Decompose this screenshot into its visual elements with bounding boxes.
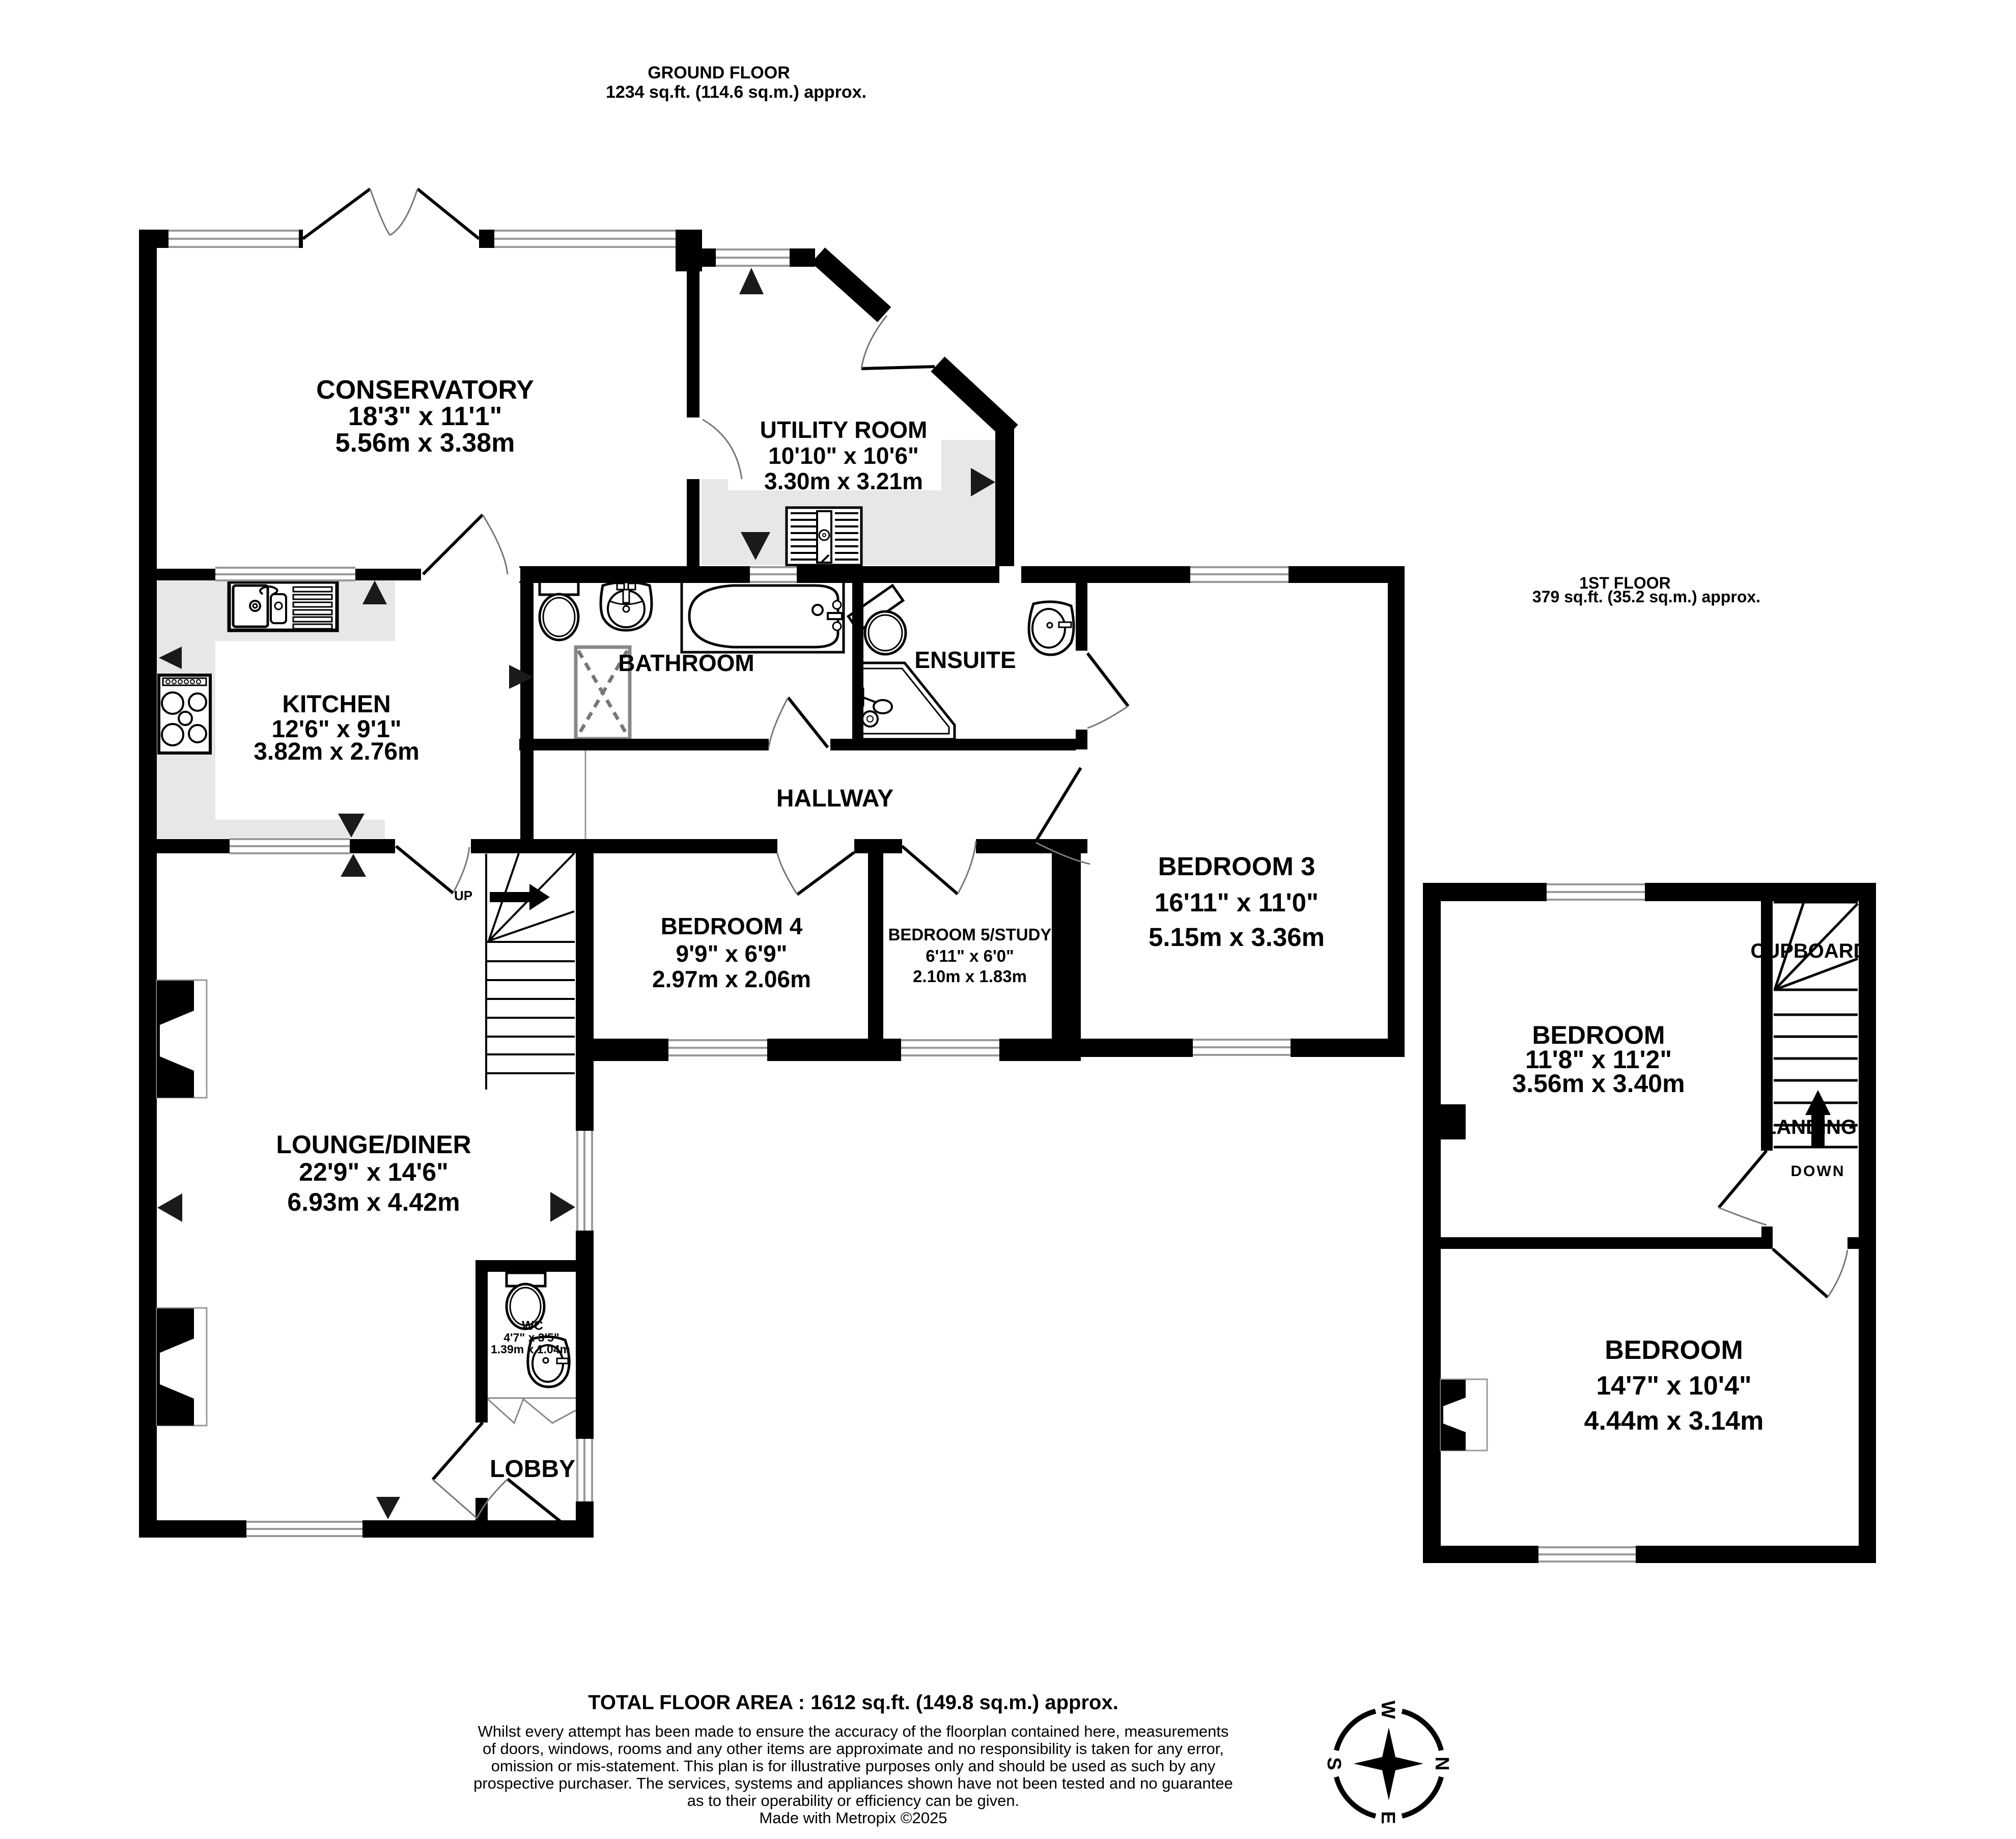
svg-text:UTILITY ROOM: UTILITY ROOM [760,416,928,443]
svg-text:BEDROOM 4: BEDROOM 4 [661,913,803,939]
svg-text:18'3" x 11'1": 18'3" x 11'1" [348,402,502,431]
svg-text:4.44m x 3.14m: 4.44m x 3.14m [1584,1406,1764,1436]
svg-text:Whilst every attempt has been: Whilst every attempt has been made to en… [478,1722,1228,1740]
svg-text:GROUND FLOOR: GROUND FLOOR [648,63,790,82]
svg-text:S: S [1323,1757,1345,1770]
svg-text:3.82m x 2.76m: 3.82m x 2.76m [254,738,419,765]
svg-text:BEDROOM 5/STUDY: BEDROOM 5/STUDY [888,925,1052,944]
svg-text:10'10" x 10'6": 10'10" x 10'6" [768,442,919,469]
svg-text:BEDROOM 3: BEDROOM 3 [1158,852,1315,881]
svg-text:6.93m x 4.42m: 6.93m x 4.42m [287,1188,460,1216]
svg-text:ENSUITE: ENSUITE [914,647,1016,673]
svg-text:1234 sq.ft. (114.6 sq.m.) appr: 1234 sq.ft. (114.6 sq.m.) approx. [606,82,866,102]
svg-text:of doors, windows, rooms and a: of doors, windows, rooms and any other i… [483,1740,1224,1758]
svg-text:W: W [1377,1701,1398,1719]
svg-text:3.56m x 3.40m: 3.56m x 3.40m [1512,1069,1685,1098]
svg-text:BEDROOM: BEDROOM [1605,1335,1743,1365]
svg-text:as to their operability or eff: as to their operability or efficiency ca… [687,1792,1020,1809]
svg-text:2.10m x 1.83m: 2.10m x 1.83m [913,967,1027,986]
svg-text:CUPBOARD: CUPBOARD [1750,940,1868,962]
svg-text:1.39m x 1.04m: 1.39m x 1.04m [491,1343,570,1356]
svg-text:DOWN: DOWN [1791,1163,1845,1180]
svg-text:prospective purchaser. The ser: prospective purchaser. The services, sys… [473,1774,1233,1792]
svg-text:N: N [1431,1757,1452,1770]
svg-text:3.30m x 3.21m: 3.30m x 3.21m [764,468,923,494]
svg-text:BATHROOM: BATHROOM [618,650,754,676]
svg-text:Made with Metropix ©2025: Made with Metropix ©2025 [759,1809,947,1827]
svg-text:TOTAL FLOOR AREA : 1612 sq.ft.: TOTAL FLOOR AREA : 1612 sq.ft. (149.8 sq… [588,1691,1118,1714]
svg-text:22'9" x 14'6": 22'9" x 14'6" [299,1158,449,1186]
svg-text:5.15m x 3.36m: 5.15m x 3.36m [1149,923,1325,952]
svg-text:E: E [1377,1811,1398,1824]
svg-text:omission or mis-statement. Thi: omission or mis-statement. This plan is … [491,1757,1216,1775]
svg-text:14'7" x 10'4": 14'7" x 10'4" [1596,1371,1751,1401]
svg-text:CONSERVATORY: CONSERVATORY [316,375,534,405]
svg-text:LOUNGE/DINER: LOUNGE/DINER [276,1130,471,1159]
svg-text:UP: UP [454,888,472,903]
svg-text:HALLWAY: HALLWAY [776,785,893,812]
svg-text:6'11" x 6'0": 6'11" x 6'0" [926,946,1014,965]
svg-text:2.97m x 2.06m: 2.97m x 2.06m [652,966,811,992]
svg-text:LOBBY: LOBBY [490,1456,575,1483]
svg-text:KITCHEN: KITCHEN [282,691,390,718]
svg-text:5.56m x 3.38m: 5.56m x 3.38m [335,428,515,458]
svg-text:379 sq.ft. (35.2 sq.m.) approx: 379 sq.ft. (35.2 sq.m.) approx. [1532,588,1760,606]
svg-text:LANDING: LANDING [1764,1116,1857,1138]
svg-text:16'11" x 11'0": 16'11" x 11'0" [1155,888,1319,917]
svg-text:9'9" x 6'9": 9'9" x 6'9" [676,940,788,967]
